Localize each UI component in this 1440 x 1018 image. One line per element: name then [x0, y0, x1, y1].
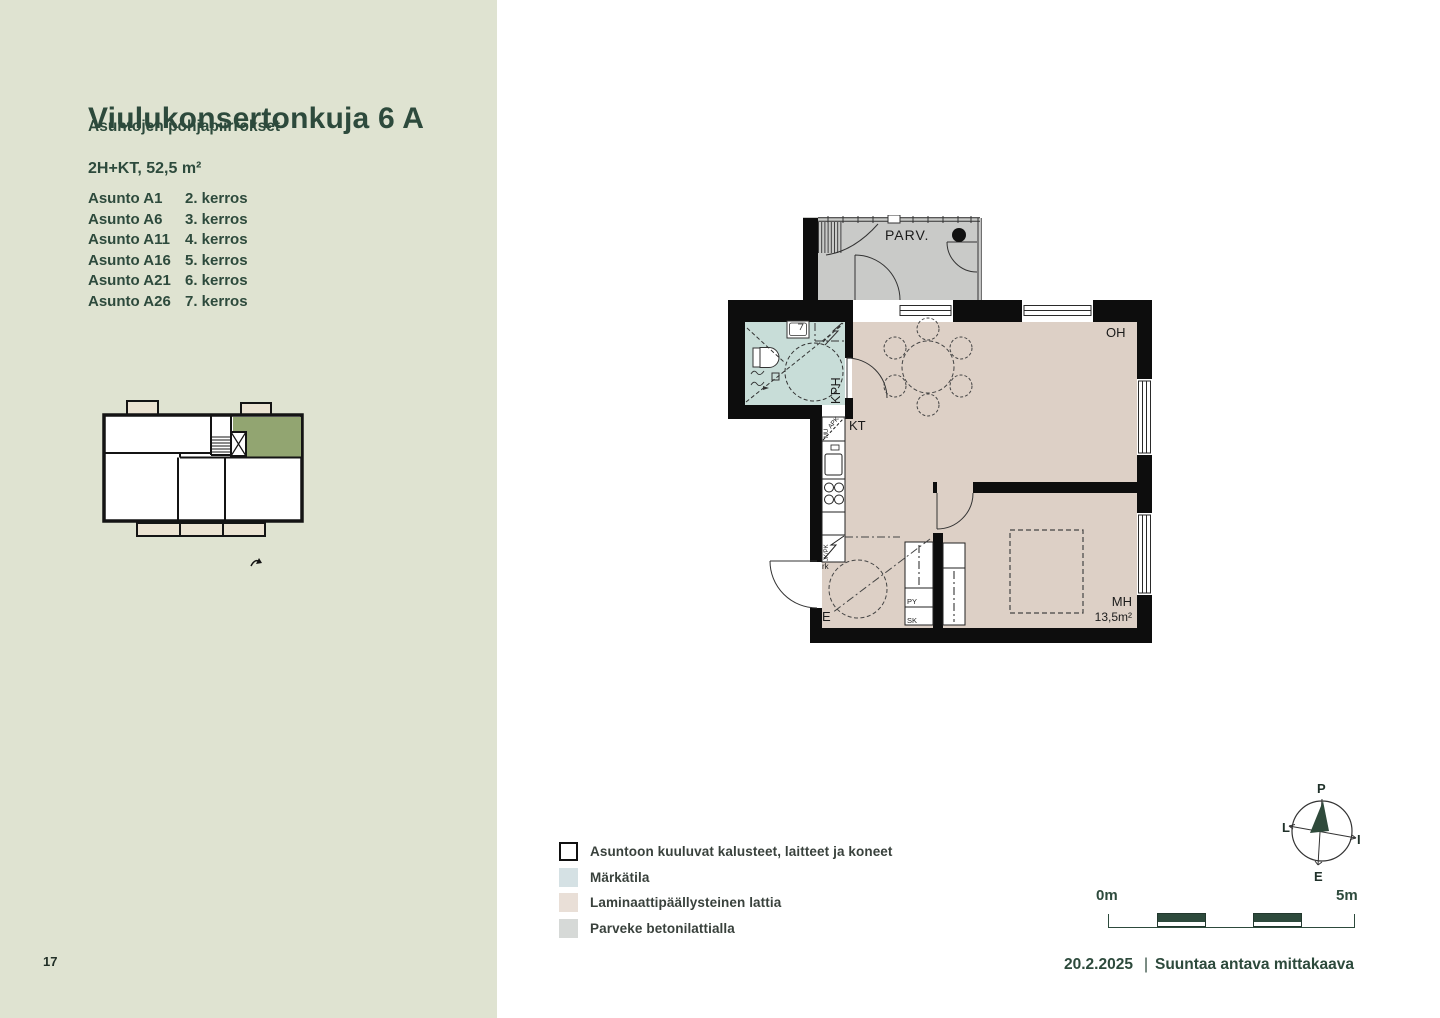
sink-unit — [822, 441, 845, 479]
kitchen-label: KT — [849, 418, 866, 433]
window-right-living — [1137, 379, 1152, 455]
window-top-1 — [898, 300, 953, 322]
legend-item: Asuntoon kuuluvat kalusteet, laitteet ja… — [559, 842, 893, 861]
floorplan-drawing: PARV. KPH KT OH MH 13,5m² E rk PY SK APK… — [728, 215, 1155, 645]
list-item: Asunto A16 5. kerros — [88, 251, 248, 272]
legend-label: Parveke betonilattialla — [590, 921, 735, 936]
balcony-door-opening — [853, 300, 898, 322]
scale-bar-line — [1108, 914, 1355, 928]
page-subtitle: Asuntojen pohjapiirrokset — [88, 118, 280, 136]
window-right-bedroom — [1137, 513, 1152, 595]
scale-segment — [1253, 913, 1302, 927]
apartment-name: Asunto A1 — [88, 189, 185, 210]
scale-bar: 0m 5m — [1096, 887, 1366, 931]
window-top-2 — [1022, 300, 1093, 322]
brochure-page: Viulukonsertonkuja 6 A Asuntojen pohjapi… — [0, 0, 1440, 1018]
apartment-name: Asunto A21 — [88, 271, 185, 292]
legend-label: Märkätila — [590, 870, 649, 885]
apartment-list: Asunto A1 2. kerros Asunto A6 3. kerros … — [88, 189, 248, 312]
list-item: Asunto A26 7. kerros — [88, 292, 248, 313]
footer-separator: | — [1144, 956, 1148, 973]
fridge-freezer-label: JK/PK — [824, 544, 830, 561]
footer-note: 20.2.2025|Suuntaa antava mittakaava — [1064, 956, 1354, 974]
apartment-floor: 4. kerros — [185, 230, 248, 251]
cabinet-label: rk — [822, 562, 830, 571]
legend-label: Asuntoon kuuluvat kalusteet, laitteet ja… — [590, 844, 893, 859]
cleaning-closet-label: SK — [907, 616, 917, 625]
microwave-label: MU — [824, 429, 830, 438]
entrance-door — [770, 561, 817, 608]
bedroom-area-label: 13,5m² — [1095, 610, 1132, 624]
compass-east-label: I — [1357, 832, 1361, 847]
legend-swatch-fixtures — [559, 842, 578, 861]
bedroom-closet — [943, 543, 965, 625]
laundry-closet-label: PY — [907, 597, 917, 606]
legend: Asuntoon kuuluvat kalusteet, laitteet ja… — [559, 842, 893, 938]
laminate-floor — [822, 322, 1137, 628]
apartment-name: Asunto A6 — [88, 210, 185, 231]
apartment-floor: 3. kerros — [185, 210, 248, 231]
stove — [822, 479, 845, 512]
counter-unit — [822, 512, 845, 535]
toilet — [753, 348, 779, 368]
apartment-name: Asunto A26 — [88, 292, 185, 313]
legend-swatch-laminate — [559, 893, 578, 912]
living-room-label: OH — [1106, 325, 1126, 340]
apartment-name: Asunto A11 — [88, 230, 185, 251]
legend-swatch-wet-room — [559, 868, 578, 887]
apartment-floor: 2. kerros — [185, 189, 248, 210]
compass-south-label: E — [1314, 869, 1323, 884]
keyplan-north-arrow — [251, 558, 262, 566]
list-item: Asunto A6 3. kerros — [88, 210, 248, 231]
sidebar: Viulukonsertonkuja 6 A Asuntojen pohjapi… — [0, 0, 497, 1018]
legend-item: Laminaattipäällysteinen lattia — [559, 893, 893, 912]
scale-start-label: 0m — [1096, 887, 1118, 904]
footer-date: 20.2.2025 — [1064, 956, 1133, 973]
list-item: Asunto A21 6. kerros — [88, 271, 248, 292]
keyplan-elevator — [231, 432, 246, 456]
balcony-drain-dot — [952, 228, 966, 242]
apartment-name: Asunto A16 — [88, 251, 185, 272]
scale-segment — [1157, 913, 1206, 927]
legend-item: Parveke betonilattialla — [559, 919, 893, 938]
apartment-type-heading: 2H+KT, 52,5 m² — [88, 160, 201, 178]
list-item: Asunto A11 4. kerros — [88, 230, 248, 251]
footer-scale-note: Suuntaa antava mittakaava — [1155, 956, 1354, 973]
washbasin — [787, 321, 809, 338]
list-item: Asunto A1 2. kerros — [88, 189, 248, 210]
compass-north-label: P — [1317, 781, 1326, 796]
balcony-label: PARV. — [885, 227, 929, 243]
page-number: 17 — [43, 954, 57, 969]
north-arrow-icon — [1310, 801, 1329, 833]
legend-item: Märkätila — [559, 868, 893, 887]
apartment-floor: 5. kerros — [185, 251, 248, 272]
legend-swatch-balcony — [559, 919, 578, 938]
bathroom-label: KPH — [829, 377, 843, 404]
hall-closet — [905, 542, 933, 625]
apartment-floor: 7. kerros — [185, 292, 248, 313]
compass-west-label: L — [1282, 820, 1290, 835]
keyplan-thumbnail — [100, 399, 306, 574]
compass-rose: P L I E — [1280, 780, 1364, 892]
entrance-label: E — [822, 609, 831, 624]
apartment-floor: 6. kerros — [185, 271, 248, 292]
bedroom-label: MH — [1112, 594, 1132, 609]
legend-label: Laminaattipäällysteinen lattia — [590, 895, 781, 910]
